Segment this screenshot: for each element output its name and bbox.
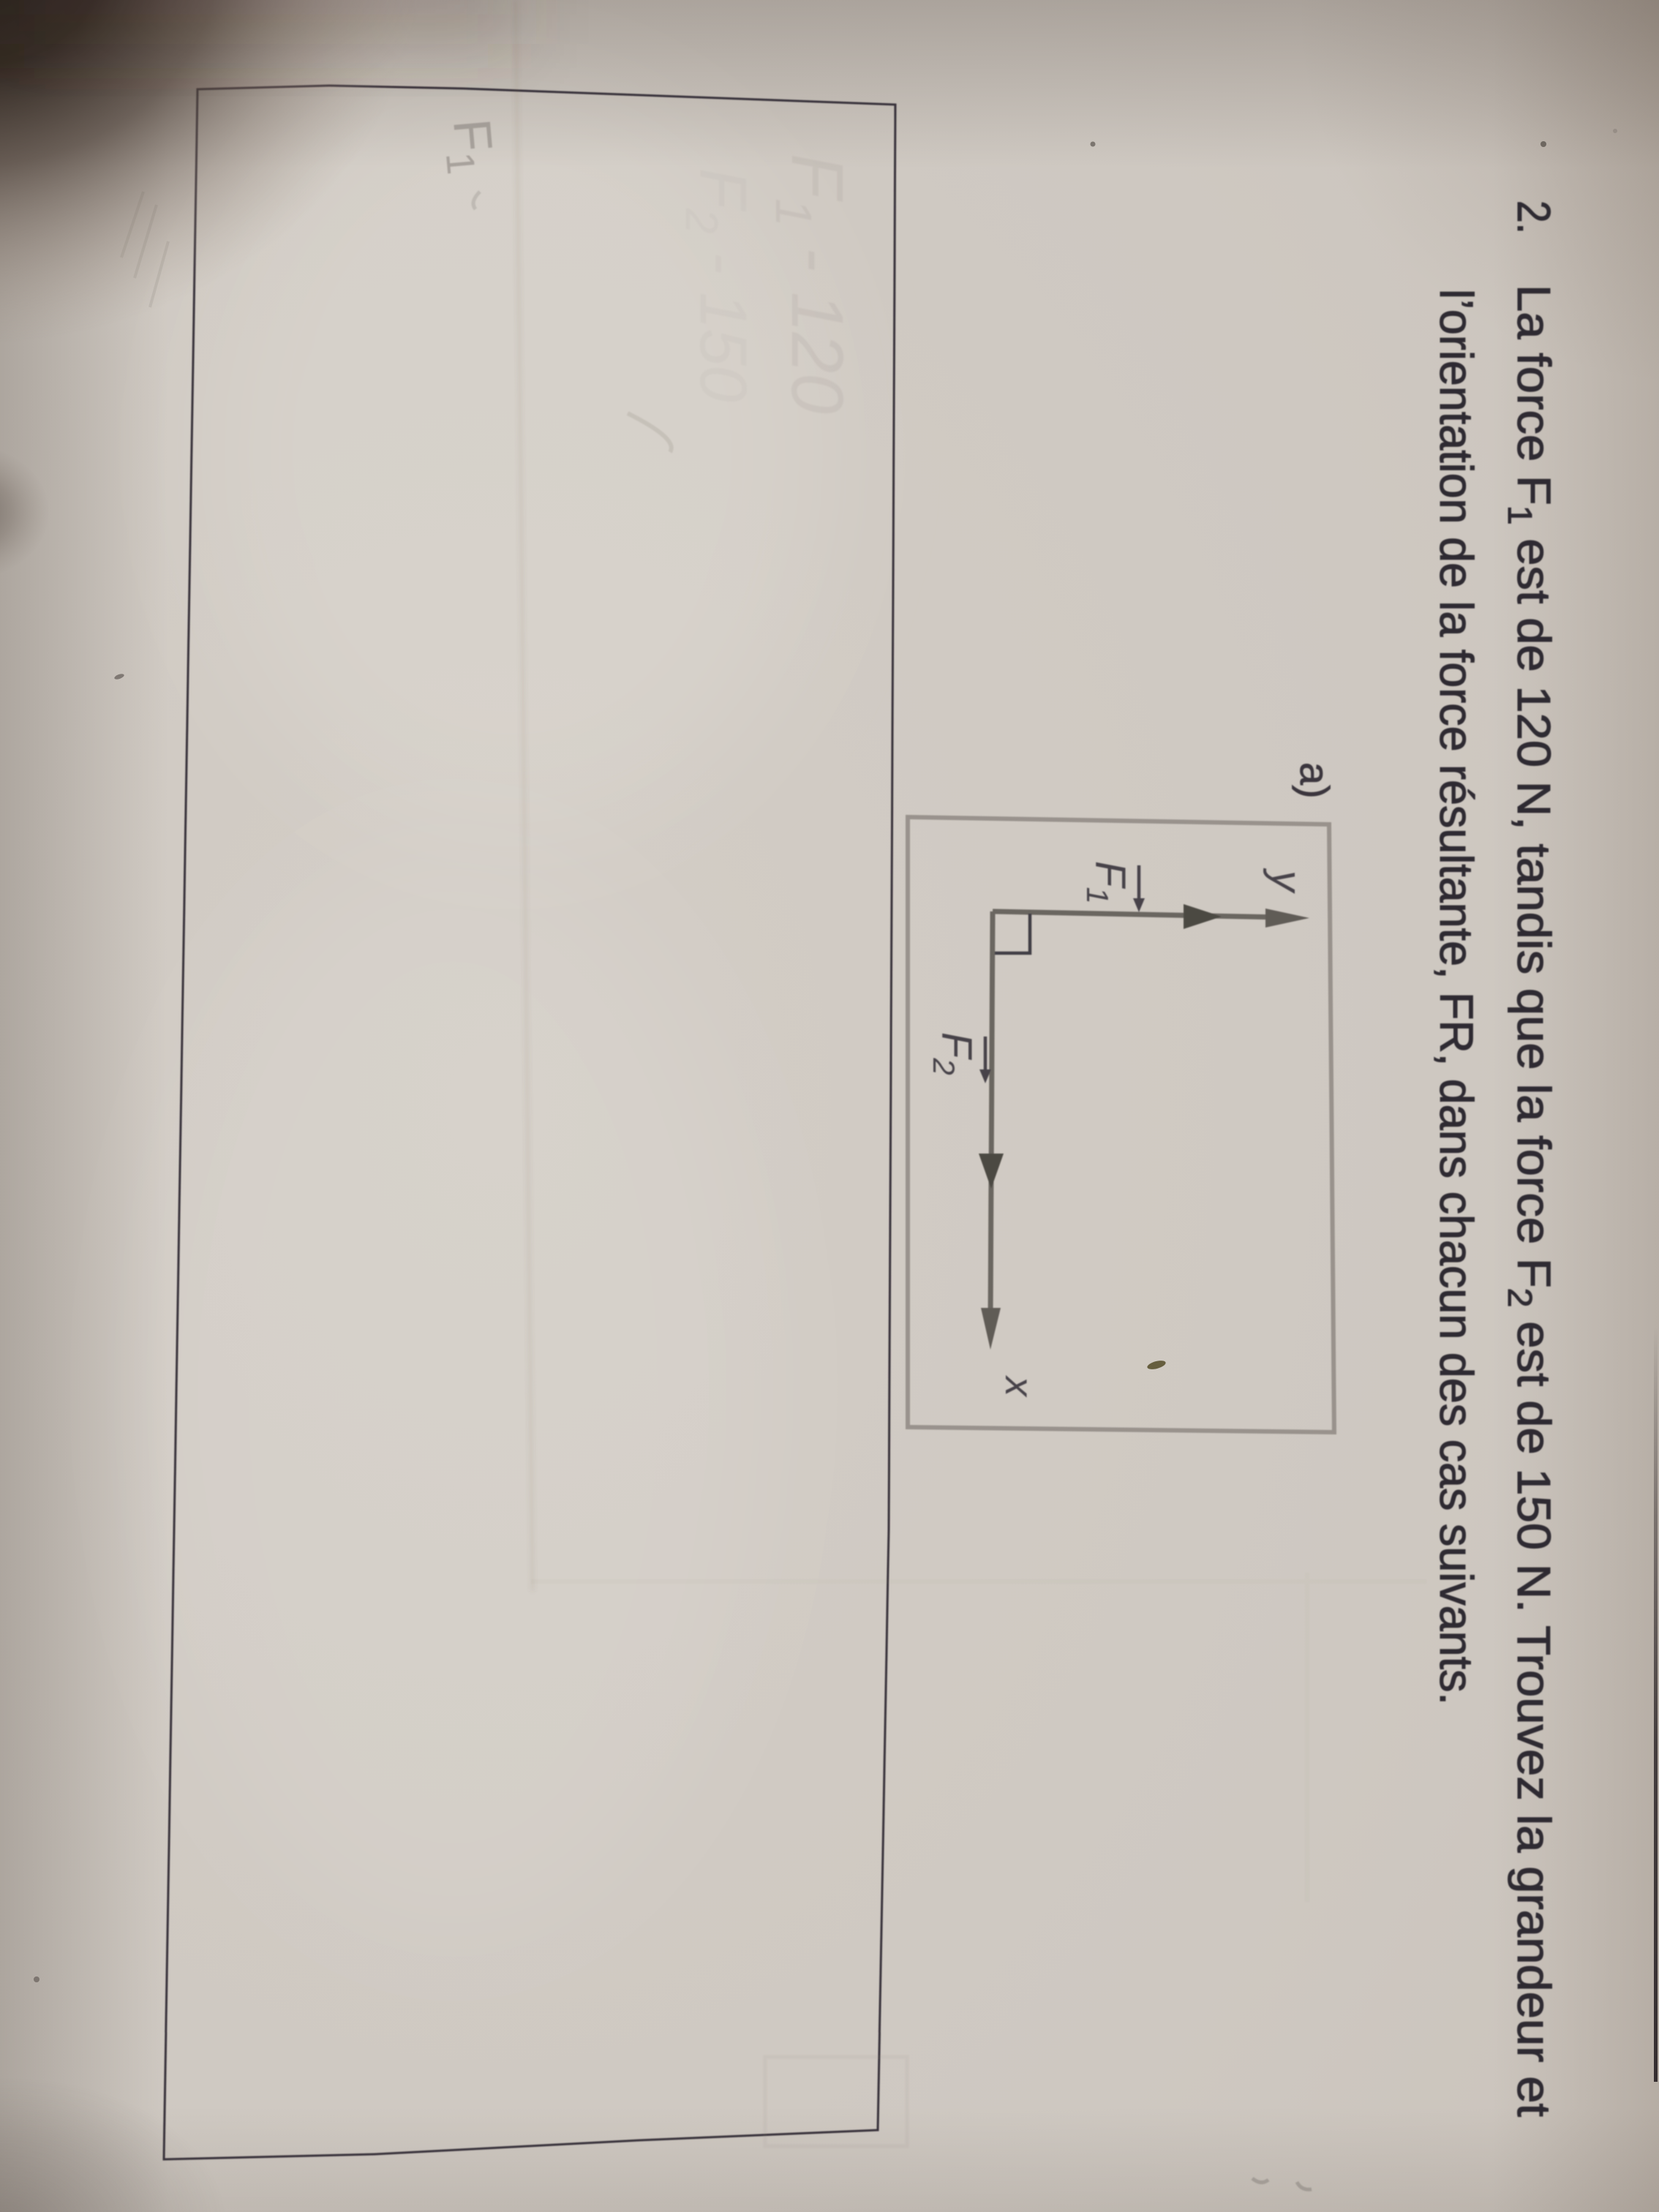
svg-text:x: x	[997, 1374, 1041, 1398]
svg-text:La force F1 est de 120 N, tand: La force F1 est de 120 N, tandis que la …	[1501, 285, 1560, 2117]
svg-text:F1 - 120: F1 - 120	[765, 154, 858, 414]
svg-text:2.: 2.	[1508, 200, 1560, 234]
svg-text:y: y	[1263, 868, 1310, 894]
svg-text:l’orientation de la force résu: l’orientation de la force résultante, FR…	[1430, 289, 1483, 1705]
svg-text:F2 - 150: F2 - 150	[676, 168, 759, 402]
svg-text:a): a)	[1292, 762, 1338, 799]
